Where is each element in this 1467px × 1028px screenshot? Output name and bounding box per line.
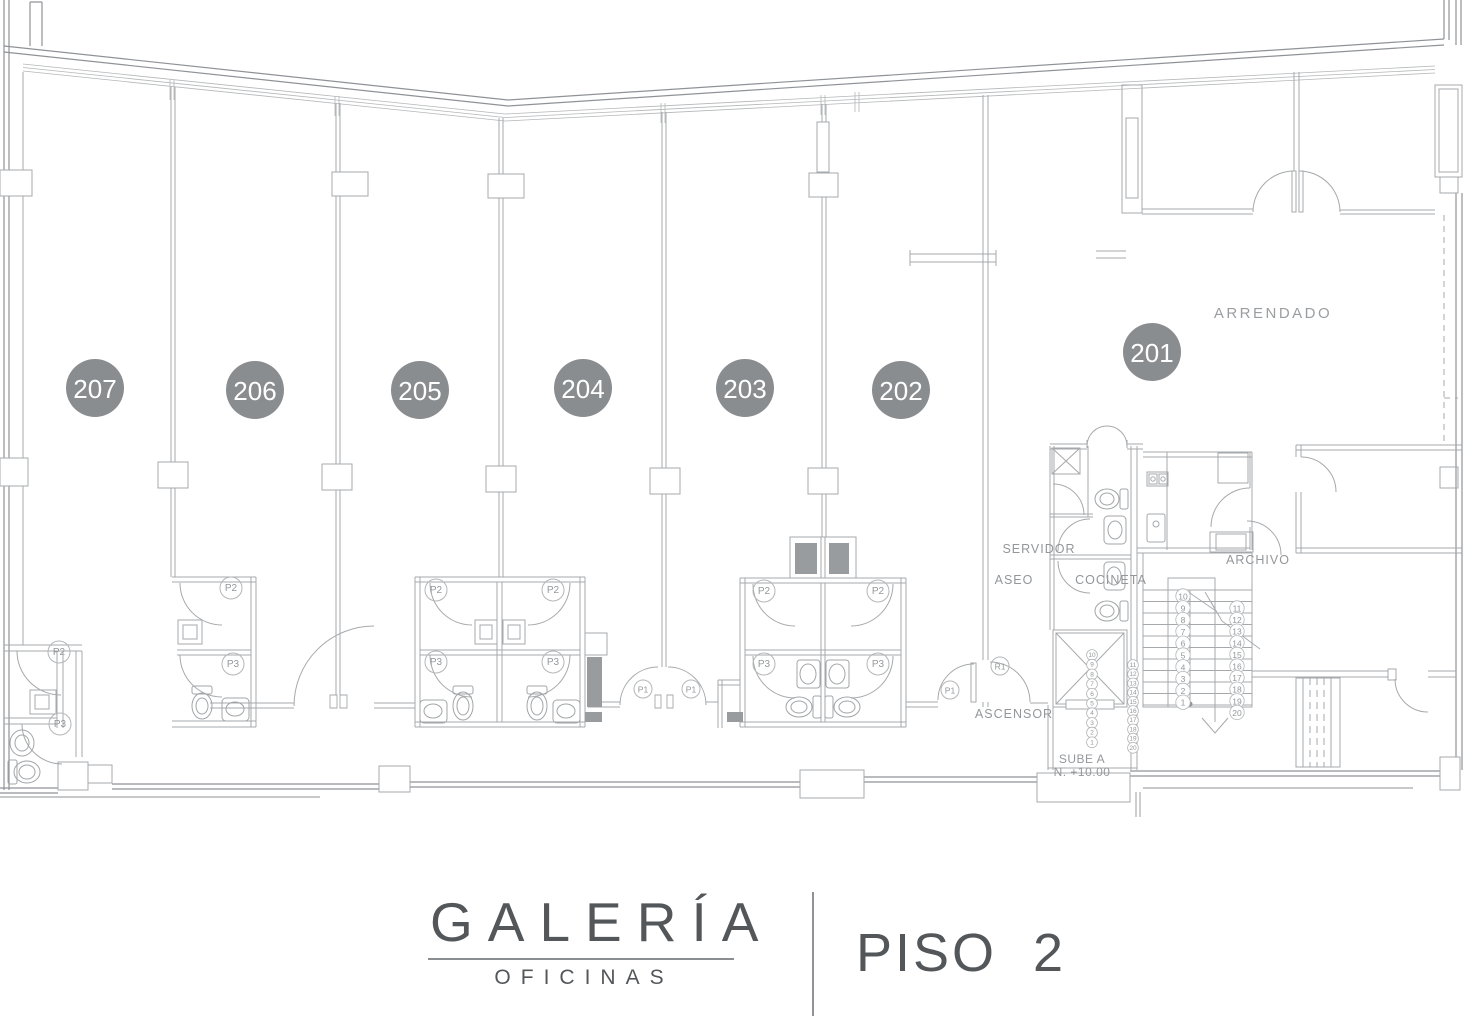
door-tag-label: P2: [547, 585, 560, 596]
plan-geometry: [1153, 521, 1159, 527]
plan-geometry: [1126, 118, 1138, 198]
stair-tread-number: 2: [1087, 727, 1098, 738]
shaft-gray-small: [727, 712, 743, 722]
door-tag-p1: P1: [634, 680, 652, 698]
tread-number-label: 3: [1181, 674, 1186, 684]
stair-tread-number: 6: [1087, 688, 1098, 699]
door-tag-label: P2: [430, 585, 443, 596]
door-tag-p1: P1: [682, 680, 700, 698]
toilet-symbol: [453, 686, 473, 720]
door-tag-label: P3: [54, 719, 67, 730]
stair-tread-number: 5: [1087, 698, 1098, 709]
plan-geometry: [424, 704, 442, 718]
right-room-door-arc: [1395, 679, 1428, 712]
room-door-arc: [1301, 457, 1336, 492]
stair-tread-number: 20: [1128, 742, 1139, 753]
tread-number-label: 19: [1129, 736, 1137, 743]
plan-geometry: [786, 697, 812, 717]
door-tag-p3: P3: [867, 653, 889, 675]
tread-number-label: 11: [1130, 662, 1137, 669]
plan-geometry: [475, 620, 497, 644]
stair-tread-number: 8: [1087, 669, 1098, 680]
plan-geometry: [1122, 85, 1142, 213]
stair-tread-number: 1: [1087, 737, 1098, 748]
door-tag-p1: P1: [941, 681, 959, 699]
plan-geometry: [14, 761, 40, 783]
door-tag-label: P3: [227, 659, 240, 670]
plan-geometry: [508, 625, 520, 639]
bathroom-cluster-203-202: [727, 537, 906, 727]
unit-badge-201: 201: [1123, 323, 1181, 381]
kitchen-door-arc: [1211, 488, 1250, 527]
door-tag-label: P1: [686, 685, 697, 695]
tread-number-label: 6: [1090, 691, 1094, 698]
door-tag-label: P1: [638, 685, 649, 695]
tread-number-label: 18: [1232, 685, 1242, 695]
plan-geometry: [662, 112, 666, 667]
unit-number-label: 207: [73, 374, 116, 404]
plan-geometry: [813, 696, 821, 718]
toilet-symbol: [786, 696, 821, 718]
plan-geometry: [171, 87, 175, 577]
tread-number-label: 8: [1090, 671, 1094, 678]
plan-geometry: [825, 696, 833, 718]
toilet-symbol: [1095, 489, 1128, 509]
sink-symbol: [553, 700, 580, 723]
plan-geometry: [1052, 448, 1080, 474]
plan-geometry: [158, 462, 188, 488]
cocineta-label: COCINETA: [1075, 573, 1147, 587]
tread-number-label: 2: [1090, 730, 1094, 737]
unit-202-boundary-wall: [983, 95, 988, 707]
door-tag-p2: P2: [220, 577, 242, 599]
tread-number-label: 5: [1181, 651, 1186, 661]
sink-symbol: [420, 700, 447, 723]
plan-geometry: [839, 701, 855, 713]
mullion-ticks: [170, 80, 859, 123]
toilet-symbol: [527, 686, 547, 720]
door-tag-label: P2: [225, 583, 238, 594]
p2-door-arc: [180, 583, 222, 625]
plan-geometry: [457, 697, 469, 715]
door-tag-p3: P3: [753, 653, 775, 675]
tread-number-label: 15: [1129, 699, 1137, 706]
tread-number-label: 4: [1181, 662, 1186, 672]
plan-geometry: [0, 170, 32, 196]
tread-number-label: 10: [1178, 592, 1188, 602]
stair-tread-number: 1: [1176, 695, 1190, 709]
plan-geometry: [800, 770, 864, 798]
tread-number-label: 10: [1088, 652, 1096, 659]
plan-geometry: [821, 537, 825, 578]
door-tag-label: P1: [945, 686, 956, 696]
plan-geometry: [322, 464, 352, 490]
arrendado-label: ARRENDADO: [1214, 305, 1332, 322]
plan-geometry: [1151, 477, 1155, 481]
tread-number-label: 19: [1232, 696, 1242, 706]
sink-symbol: [10, 730, 34, 756]
unit-badge-203: 203: [716, 359, 774, 417]
stair-tread-number: 3: [1087, 718, 1098, 729]
door-tag-label: P2: [53, 647, 66, 658]
door-tag-label: P2: [758, 586, 771, 597]
toilet-symbol: [1095, 601, 1128, 621]
bathroom-cluster-205-204: [415, 577, 607, 727]
plan-geometry: [1440, 177, 1458, 193]
unit-number-label: 206: [233, 376, 276, 406]
unit-number-badges: 207206205204203202201: [66, 323, 1181, 419]
plan-geometry: [1050, 446, 1093, 517]
bottom-secondary-lines: [0, 788, 1413, 817]
archivo-label: ARCHIVO: [1226, 553, 1290, 567]
curtain-wall-mullions: [23, 64, 1435, 123]
plan-geometry: [809, 173, 838, 197]
window-pane-gray: [795, 543, 817, 574]
plan-geometry: [19, 765, 35, 779]
door-tag-label: P3: [547, 657, 560, 668]
unit-number-label: 201: [1130, 338, 1173, 368]
top-facade-wall: [4, 39, 1444, 106]
sink-symbol: [797, 660, 820, 688]
door-tag-p3: P3: [425, 651, 447, 673]
plan-geometry: [1120, 601, 1128, 621]
unit-badge-206: 206: [226, 361, 284, 419]
plan-geometry: [196, 698, 208, 714]
tread-number-label: 17: [1232, 673, 1242, 683]
tread-number-label: 17: [1129, 717, 1137, 724]
right-exterior-wall: [1456, 193, 1462, 770]
plan-geometry: [505, 66, 1435, 121]
plan-geometry: [1440, 757, 1460, 790]
shaft-box: [585, 633, 607, 655]
service-core: [1048, 426, 1462, 770]
tread-number-label: 1: [1181, 698, 1186, 708]
brand-name: GALERÍA: [420, 890, 742, 954]
plan-geometry: [10, 730, 34, 756]
p3-door-arc: [180, 655, 222, 697]
plan-geometry: [1142, 209, 1253, 214]
bathroom-206: [172, 577, 256, 727]
core-entry-double-swing: [1087, 426, 1127, 448]
plan-geometry: [480, 625, 492, 639]
tread-number-label: 1: [1090, 739, 1094, 746]
tread-number-label: 20: [1232, 708, 1242, 718]
plan-geometry: [1159, 474, 1167, 484]
tread-number-label: 15: [1232, 650, 1242, 660]
plan-geometry: [1137, 548, 1462, 553]
stair-tread-number: 9: [1087, 659, 1098, 670]
tread-number-label: 12: [1232, 615, 1242, 625]
tread-number-label: 4: [1090, 710, 1094, 717]
plan-geometry: [226, 702, 244, 716]
plan-geometry: [183, 625, 197, 639]
plan-geometry: [1147, 514, 1165, 542]
partition-glass-panel: [817, 122, 829, 172]
door-tag-label: P3: [872, 659, 885, 670]
unit-201-entry: [910, 72, 1462, 445]
unit-badge-207: 207: [66, 359, 124, 417]
toilet-symbol: [825, 696, 860, 718]
tread-number-label: 7: [1090, 681, 1094, 688]
plan-geometry: [791, 701, 807, 713]
plan-geometry: [453, 686, 473, 694]
unit-badge-202: 202: [872, 361, 930, 419]
plan-geometry: [1100, 605, 1114, 617]
title-block: GALERÍA OFICINAS PISO 2: [0, 878, 1467, 1028]
stair-note-line1: SUBE A: [1059, 752, 1105, 766]
plan-geometry: [557, 704, 575, 718]
tread-number-label: 5: [1090, 701, 1094, 708]
tread-number-label: 3: [1090, 720, 1094, 727]
plan-geometry: [1095, 489, 1119, 509]
tread-number-label: 16: [1129, 708, 1137, 715]
tread-number-label: 9: [1090, 662, 1094, 669]
sink-symbol: [222, 698, 249, 721]
down-arrow: [1202, 707, 1228, 733]
shaft-gray: [587, 657, 602, 707]
break-line-zigzag: [1184, 589, 1260, 649]
plan-geometry: [800, 664, 816, 684]
bottom-exterior-wall: [0, 771, 1440, 793]
stair-tread-number: 10: [1087, 650, 1098, 661]
p3-door-arc: [22, 724, 62, 764]
page: { "title_block": { "brand": "GALERÍA", "…: [0, 0, 1467, 1028]
brand-rule: [428, 958, 734, 960]
plan-geometry: [1108, 521, 1122, 539]
sink-symbol: [826, 660, 849, 688]
unit-badge-205: 205: [391, 361, 449, 419]
tread-number-label: 11: [1233, 604, 1242, 614]
plan-geometry: [650, 468, 680, 494]
unit-partitions: [23, 72, 988, 708]
floor-title: PISO 2: [856, 922, 1066, 984]
door-tag-label: P2: [872, 586, 885, 597]
tread-number-label: 12: [1129, 671, 1137, 678]
plan-geometry: [379, 766, 410, 792]
plan-geometry: [808, 468, 838, 494]
tread-number-label: 2: [1181, 686, 1186, 696]
mid-wall-segments: [910, 250, 1126, 266]
plan-geometry: [192, 693, 212, 719]
sink-symbol: [1104, 516, 1126, 544]
plan-geometry: [1252, 671, 1340, 677]
unit-number-label: 202: [879, 376, 922, 406]
plan-geometry: [1440, 467, 1458, 488]
unit-badge-204: 204: [554, 359, 612, 417]
unit-number-label: 203: [723, 374, 766, 404]
plan-geometry: [172, 577, 256, 727]
shower-door-arc: [1053, 484, 1084, 515]
plan-geometry: [30, 690, 56, 714]
door-tag-label: P3: [430, 657, 443, 668]
plan-geometry: [1340, 210, 1435, 214]
stair-tread-number: 4: [1087, 708, 1098, 719]
aseo-label: ASEO: [995, 573, 1034, 587]
floor-plan-canvas: 207206205204203202201 P2P2P2P2P2P2P3P3P3…: [0, 0, 1467, 878]
unit-number-label: 205: [398, 376, 441, 406]
tread-number-label: 13: [1129, 680, 1137, 687]
plan-geometry: [1388, 669, 1396, 680]
tread-number-label: 8: [1181, 615, 1186, 625]
plan-geometry: [740, 578, 906, 727]
tread-number-label: 6: [1181, 639, 1186, 649]
tread-number-label: 14: [1129, 690, 1137, 697]
tread-number-label: 18: [1129, 726, 1137, 733]
servidor-label: SERVIDOR: [1002, 542, 1075, 556]
double-door-leaves: [1292, 72, 1303, 212]
door-tag-label: P3: [758, 659, 771, 670]
tread-number-label: 9: [1181, 603, 1186, 613]
plan-geometry: [88, 765, 112, 783]
toilet-symbol: [192, 686, 212, 719]
door-tag-p2: P2: [48, 641, 70, 663]
plan-geometry: [834, 697, 860, 717]
plan-geometry: [588, 702, 718, 707]
door-tag-r1: R1: [991, 657, 1009, 675]
toilet-symbol: [8, 760, 40, 784]
shaft-gray-small: [585, 712, 602, 722]
plan-geometry: [503, 620, 525, 644]
stair-tread-number: 7: [1087, 679, 1098, 690]
plan-geometry: [1161, 477, 1165, 481]
title-divider: [812, 892, 814, 1016]
plan-geometry: [1100, 493, 1114, 505]
kitchen-cocineta: [1143, 452, 1253, 552]
office-door-arc: [294, 626, 374, 706]
kitchen-sink-symbol: [1147, 514, 1165, 542]
plan-geometry: [829, 664, 845, 684]
bottom-wall-columns: [58, 762, 88, 790]
plan-geometry: [1095, 601, 1119, 621]
door-tag-p3: P3: [222, 653, 244, 675]
left-exterior-wall: [4, 0, 9, 790]
tread-number-label: 20: [1129, 745, 1137, 752]
plan-geometry: [1296, 445, 1462, 553]
plan-geometry: [531, 697, 543, 715]
unit-number-label: 204: [561, 374, 604, 404]
plan-geometry: [1149, 474, 1157, 484]
plan-geometry: [1120, 489, 1128, 509]
door-tag-p3: P3: [542, 651, 564, 673]
tread-number-label: 7: [1181, 627, 1186, 637]
window-pane-gray: [829, 543, 849, 574]
ramp-hatch: [1296, 678, 1340, 767]
plan-geometry: [1143, 452, 1252, 550]
door-tag-label: R1: [995, 662, 1006, 672]
stair-tread-number: 20: [1230, 705, 1244, 719]
plan-geometry: [1104, 516, 1126, 544]
tread-number-label: 14: [1232, 638, 1242, 648]
plan-geometry: [35, 695, 49, 709]
brand-logo: GALERÍA OFICINAS: [420, 890, 742, 990]
ascensor-label: ASCENSOR: [975, 707, 1053, 721]
door-tags: P2P2P2P2P2P2P3P3P3P3P3P3P1P1P1R1: [48, 577, 1009, 735]
brand-subtitle: OFICINAS: [420, 966, 742, 990]
top-corner-stubs: [30, 0, 1461, 46]
plan-geometry: [527, 686, 547, 694]
plan-geometry: [488, 174, 524, 198]
plan-geometry: [178, 620, 202, 644]
plan-geometry: [1340, 671, 1456, 677]
tread-number-label: 16: [1232, 662, 1242, 672]
plan-geometry: [0, 458, 28, 486]
plan-geometry: [1439, 89, 1458, 172]
plan-geometry: [332, 172, 368, 196]
plan-geometry: [486, 466, 516, 492]
stair-note-line2: N. +10.00: [1054, 765, 1111, 779]
plan-geometry: [1310, 678, 1324, 767]
tread-number-label: 13: [1232, 627, 1242, 637]
